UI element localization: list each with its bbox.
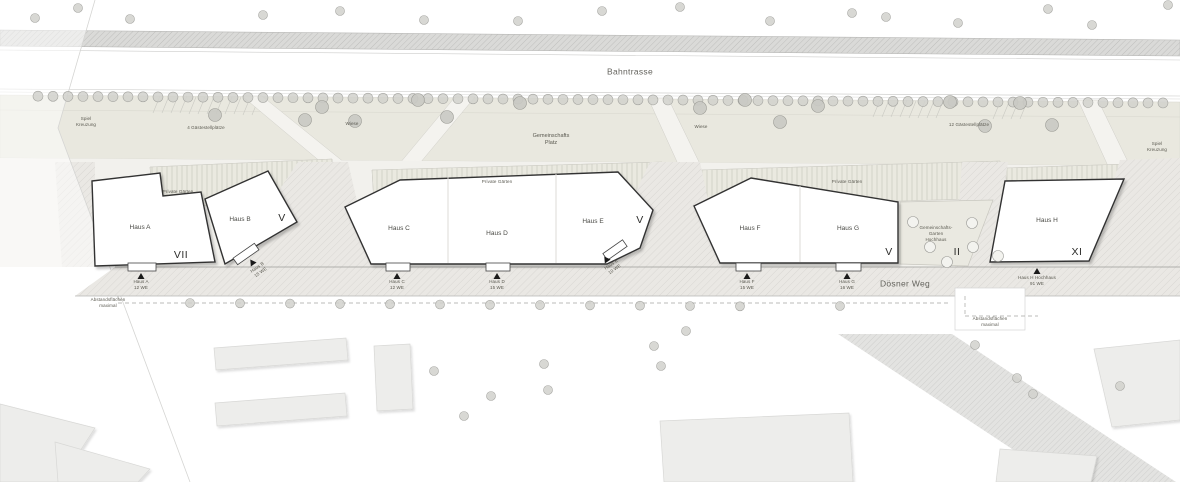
- tree-icon: [74, 4, 83, 13]
- tree-icon: [63, 91, 73, 101]
- tree-icon: [336, 299, 345, 308]
- tree-icon: [1014, 97, 1027, 110]
- tree-icon: [903, 96, 913, 106]
- building-haus-cde: [345, 172, 653, 264]
- tree-icon: [438, 94, 448, 104]
- tree-icon: [694, 102, 707, 115]
- tree-icon: [686, 302, 695, 311]
- setback-box: [955, 288, 1025, 330]
- tree-icon: [183, 92, 193, 102]
- tree-icon: [828, 96, 838, 106]
- neighbor-building: [374, 344, 413, 411]
- tree-icon: [888, 96, 898, 106]
- tree-icon: [963, 97, 973, 107]
- tree-icon: [48, 91, 58, 101]
- site-plan: Bahntrasse Dösner Weg Spiel Kreuzung 4 G…: [0, 0, 1180, 482]
- tree-icon: [1053, 97, 1063, 107]
- tree-icon: [1083, 98, 1093, 108]
- tree-icon: [453, 94, 463, 104]
- tree-icon: [536, 301, 545, 310]
- neighbor-building: [215, 393, 347, 426]
- tree-icon: [858, 96, 868, 106]
- tree-icon: [1113, 98, 1123, 108]
- tree-icon: [678, 95, 688, 105]
- tree-icon: [723, 95, 733, 105]
- tree-icon: [168, 92, 178, 102]
- tree-icon: [993, 251, 1004, 262]
- tree-icon: [93, 92, 103, 102]
- tree-icon: [768, 96, 778, 106]
- tree-icon: [31, 14, 40, 23]
- tree-icon: [299, 114, 312, 127]
- tree-icon: [1068, 97, 1078, 107]
- tree-icon: [498, 94, 508, 104]
- tree-icon: [33, 91, 43, 101]
- tree-icon: [209, 109, 222, 122]
- tree-icon: [460, 412, 469, 421]
- tree-icon: [412, 94, 425, 107]
- tree-icon: [1098, 98, 1108, 108]
- tree-icon: [236, 299, 245, 308]
- tree-icon: [483, 94, 493, 104]
- tree-icon: [933, 97, 943, 107]
- tree-icon: [303, 93, 313, 103]
- tree-icon: [336, 7, 345, 16]
- tree-icon: [393, 93, 403, 103]
- tree-icon: [316, 101, 329, 114]
- tree-icon: [1088, 21, 1097, 30]
- tree-icon: [954, 19, 963, 28]
- tree-icon: [650, 342, 659, 351]
- tree-icon: [812, 100, 825, 113]
- tree-icon: [468, 94, 478, 104]
- tree-icon: [783, 96, 793, 106]
- tree-icon: [993, 97, 1003, 107]
- tree-icon: [198, 92, 208, 102]
- tree-icon: [971, 341, 980, 350]
- tree-icon: [978, 97, 988, 107]
- neighbor-building: [214, 338, 348, 370]
- site-plan-drawing: [0, 0, 1180, 482]
- tree-icon: [487, 392, 496, 401]
- tree-icon: [836, 302, 845, 311]
- tree-icon: [798, 96, 808, 106]
- tree-icon: [514, 97, 527, 110]
- tree-icon: [286, 299, 295, 308]
- tree-icon: [908, 217, 919, 228]
- tree-icon: [186, 299, 195, 308]
- tree-icon: [540, 360, 549, 369]
- tree-icon: [78, 91, 88, 101]
- tree-icon: [848, 9, 857, 18]
- tree-icon: [753, 96, 763, 106]
- tree-icon: [873, 96, 883, 106]
- neighbor-building: [660, 413, 853, 482]
- tree-icon: [968, 242, 979, 253]
- tree-icon: [486, 300, 495, 309]
- tree-icon: [436, 300, 445, 309]
- tree-icon: [1038, 97, 1048, 107]
- tree-icon: [126, 15, 135, 24]
- tree-icon: [882, 13, 891, 22]
- tree-icon: [333, 93, 343, 103]
- tree-icon: [925, 242, 936, 253]
- tree-icon: [618, 95, 628, 105]
- tree-icon: [430, 367, 439, 376]
- tree-icon: [349, 115, 362, 128]
- tree-icon: [348, 93, 358, 103]
- tree-icon: [228, 92, 238, 102]
- tree-icon: [1158, 98, 1168, 108]
- tree-icon: [1128, 98, 1138, 108]
- tree-icon: [386, 300, 395, 309]
- tree-icon: [774, 116, 787, 129]
- tree-icon: [363, 93, 373, 103]
- tree-icon: [1029, 390, 1038, 399]
- tree-icon: [663, 95, 673, 105]
- setback-lines: [118, 296, 1038, 316]
- tree-icon: [288, 93, 298, 103]
- railway-band: [0, 30, 1180, 56]
- tree-icon: [1046, 119, 1059, 132]
- tree-icon: [598, 7, 607, 16]
- tree-icon: [588, 95, 598, 105]
- tree-icon: [108, 92, 118, 102]
- tree-icon: [682, 327, 691, 336]
- tree-icon: [273, 93, 283, 103]
- tree-icon: [123, 92, 133, 102]
- green-band: [0, 95, 1180, 166]
- tree-icon: [420, 16, 429, 25]
- tree-icon: [543, 94, 553, 104]
- tree-icon: [918, 97, 928, 107]
- tree-icon: [979, 120, 992, 133]
- tree-icon: [633, 95, 643, 105]
- tree-icon: [736, 302, 745, 311]
- tree-icon: [378, 93, 388, 103]
- tree-icon: [213, 92, 223, 102]
- neighbor-building: [1094, 340, 1180, 427]
- tree-icon: [942, 257, 953, 268]
- tree-icon: [558, 94, 568, 104]
- tree-icon: [739, 94, 752, 107]
- tree-icon: [967, 218, 978, 229]
- tree-icon: [586, 301, 595, 310]
- tree-icon: [648, 95, 658, 105]
- tree-icon: [843, 96, 853, 106]
- tree-icon: [573, 94, 583, 104]
- tree-icon: [514, 17, 523, 26]
- tree-icon: [708, 95, 718, 105]
- tree-icon: [766, 17, 775, 26]
- tree-icon: [603, 95, 613, 105]
- tree-icon: [544, 386, 553, 395]
- tree-icon: [153, 92, 163, 102]
- tree-icon: [259, 11, 268, 20]
- tree-icon: [657, 362, 666, 371]
- tree-icon: [441, 111, 454, 124]
- tree-icon: [944, 96, 957, 109]
- tree-icon: [1044, 5, 1053, 14]
- tree-icon: [243, 92, 253, 102]
- tree-icon: [258, 93, 268, 103]
- tree-icon: [528, 94, 538, 104]
- tree-icon: [636, 301, 645, 310]
- tree-icon: [1164, 1, 1173, 10]
- tree-icon: [1143, 98, 1153, 108]
- tree-icon: [676, 3, 685, 12]
- tree-icon: [1013, 374, 1022, 383]
- tree-icon: [138, 92, 148, 102]
- tree-icon: [1116, 382, 1125, 391]
